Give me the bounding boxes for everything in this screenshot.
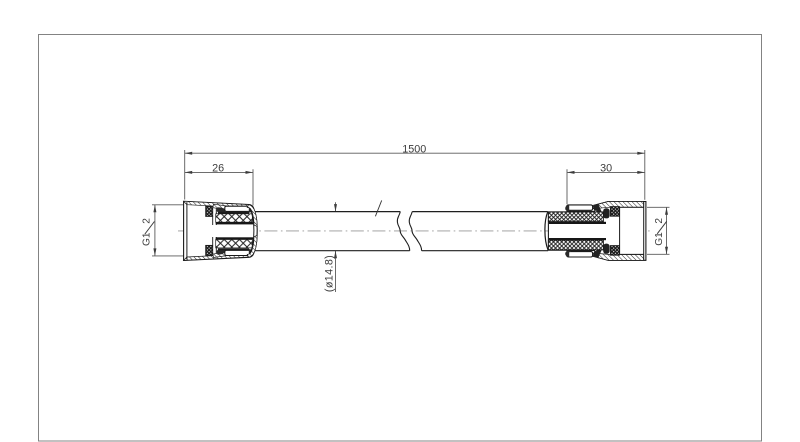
svg-text:30: 30 <box>600 162 612 174</box>
svg-text:G1: G1 <box>654 232 665 246</box>
svg-text:26: 26 <box>212 162 224 174</box>
svg-text:(ø14.8): (ø14.8) <box>324 255 336 292</box>
svg-text:G1: G1 <box>142 232 153 246</box>
svg-text:2: 2 <box>142 218 153 224</box>
svg-text:1500: 1500 <box>402 144 426 156</box>
svg-text:2: 2 <box>654 218 665 224</box>
